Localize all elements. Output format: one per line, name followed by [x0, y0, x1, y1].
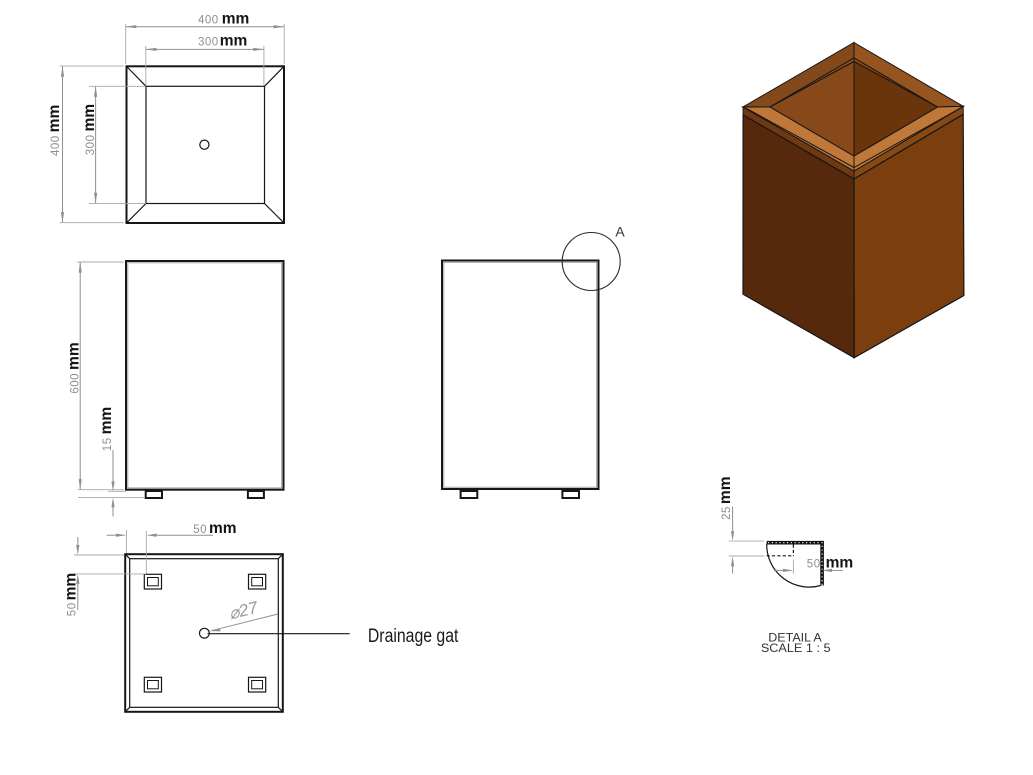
svg-text:Drainage gat: Drainage gat [368, 626, 459, 647]
svg-text:SCALE 1 : 5: SCALE 1 : 5 [761, 641, 831, 655]
svg-text:A: A [615, 224, 625, 240]
